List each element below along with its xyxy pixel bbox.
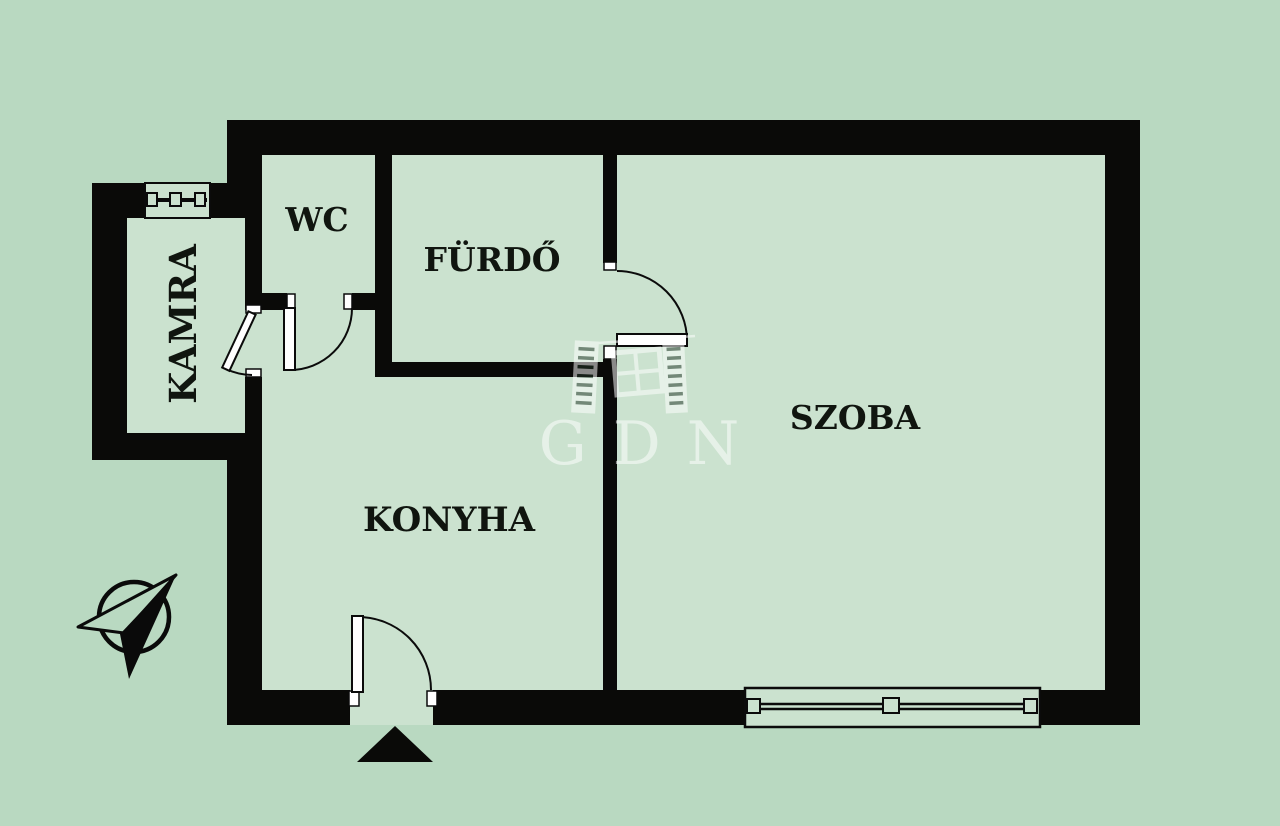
room-label-wc: WC	[284, 200, 348, 239]
wall-wc-south-right-stub	[352, 293, 375, 310]
wall-annex-bottom	[92, 433, 245, 460]
entrance-opening-area	[350, 690, 437, 725]
kamra-window-symbol	[145, 183, 210, 218]
szoba-window-symbol	[745, 688, 1040, 727]
wall-annex-left	[92, 183, 127, 460]
wall-top	[227, 120, 1140, 155]
room-label-furdo: FÜRDŐ	[424, 239, 561, 279]
wall-bottom-middle-segment	[433, 690, 745, 725]
wall-annex-top-right	[210, 183, 262, 218]
wc-door-jamb-right	[344, 294, 352, 309]
entrance-door-jamb-right	[427, 691, 437, 706]
watermark-text: GDN	[539, 409, 766, 479]
wall-right	[1105, 120, 1140, 725]
wc-door-leaf	[284, 308, 295, 370]
szoba-door-jamb-top	[604, 262, 616, 270]
wall-bottom-right-segment	[1040, 690, 1140, 725]
floor-plan-canvas: KAMRA WC FÜRDŐ KONYHA SZOBA	[0, 0, 1280, 826]
wall-kamra-east-upper	[245, 218, 262, 310]
entrance-door-leaf	[352, 616, 363, 692]
entrance-door-jamb-left	[349, 691, 359, 706]
room-label-szoba: SZOBA	[790, 398, 921, 437]
wall-szoba-divider-upper	[603, 155, 617, 263]
room-label-konyha: KONYHA	[363, 500, 536, 540]
wc-door-jamb-left	[287, 294, 295, 309]
wall-wc-furdo-divider	[375, 155, 392, 362]
wall-left-lower	[227, 433, 262, 725]
room-label-kamra: KAMRA	[161, 243, 205, 404]
